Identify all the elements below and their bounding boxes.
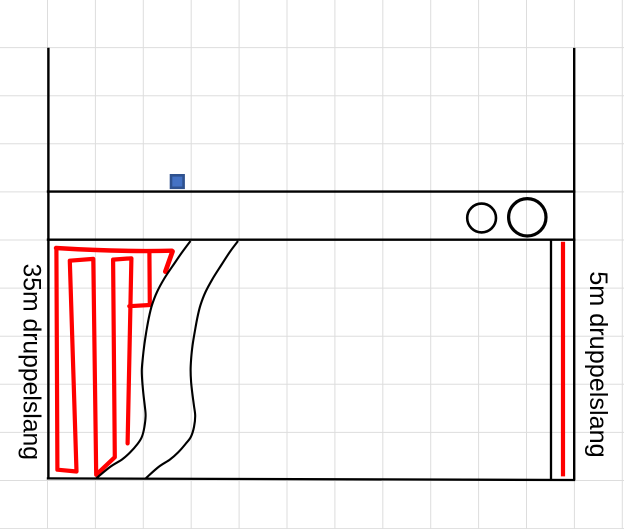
svg-text:35m druppelslang: 35m druppelslang: [17, 264, 45, 461]
svg-text:5m druppelslang: 5m druppelslang: [584, 271, 612, 458]
